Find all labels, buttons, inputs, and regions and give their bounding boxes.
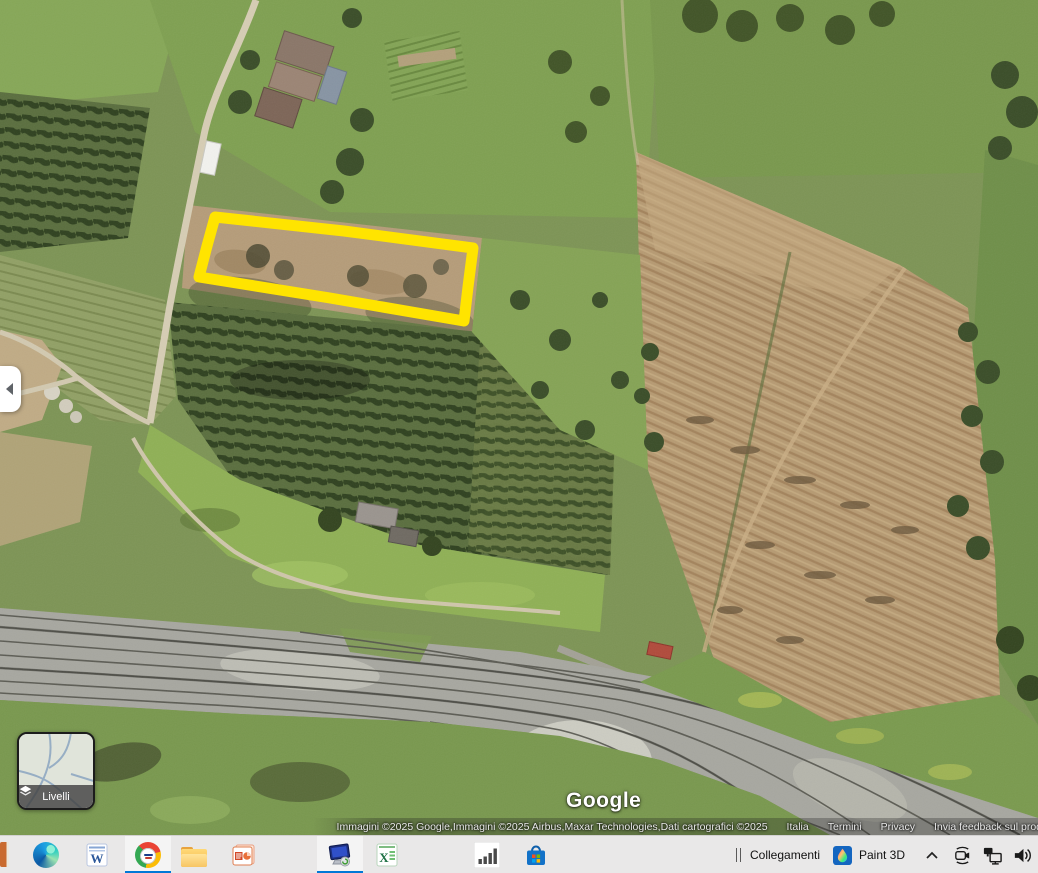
side-panel-collapse-button[interactable] bbox=[0, 366, 21, 412]
links-toolbar-label: Collegamenti bbox=[750, 848, 820, 862]
chrome-icon bbox=[135, 842, 161, 868]
system-tray bbox=[921, 836, 1038, 873]
taskbar-remote-desktop-button[interactable] bbox=[317, 836, 363, 873]
feedback-link[interactable]: Invia feedback sul prod bbox=[934, 821, 1038, 833]
taskbar-paint3d-button[interactable]: Paint 3D bbox=[826, 838, 912, 872]
google-logo[interactable]: Google bbox=[566, 789, 641, 813]
bar-chart-icon bbox=[474, 842, 500, 868]
map-attribution-bar: Immagini ©2025 Google,Immagini ©2025 Air… bbox=[0, 818, 1038, 835]
taskbar-powerpoint-button[interactable] bbox=[220, 836, 266, 873]
edge-icon bbox=[33, 842, 59, 868]
meet-now-camera-icon[interactable] bbox=[951, 844, 973, 866]
paint3d-icon bbox=[833, 846, 852, 865]
google-maps-satellite-view[interactable]: Livelli Google Immagini ©2025 Google,Imm… bbox=[0, 0, 1038, 835]
taskbar-word-button[interactable]: W bbox=[74, 836, 120, 873]
privacy-link[interactable]: Privacy bbox=[881, 821, 915, 833]
taskbar-stats-app-button[interactable] bbox=[464, 836, 510, 873]
file-explorer-icon bbox=[181, 847, 207, 867]
partial-app-icon bbox=[0, 842, 9, 867]
taskbar-partial-app-button[interactable] bbox=[0, 842, 9, 867]
hidden-icons-chevron[interactable] bbox=[921, 844, 943, 866]
remote-desktop-icon bbox=[327, 842, 353, 868]
paint3d-label: Paint 3D bbox=[859, 848, 905, 862]
links-toolbar: Collegamenti bbox=[736, 836, 820, 873]
excel-icon: X bbox=[374, 842, 400, 868]
desktop-screen: Livelli Google Immagini ©2025 Google,Imm… bbox=[0, 0, 1038, 873]
chevron-left-icon bbox=[6, 383, 13, 395]
terms-link[interactable]: Termini bbox=[828, 821, 862, 833]
satellite-imagery[interactable] bbox=[0, 0, 1038, 835]
microsoft-store-icon bbox=[523, 842, 549, 868]
region-label: Italia bbox=[787, 821, 809, 833]
powerpoint-icon bbox=[230, 842, 256, 868]
svg-text:X: X bbox=[379, 850, 389, 865]
volume-icon[interactable] bbox=[1011, 844, 1033, 866]
chrome-profile-badge bbox=[140, 848, 156, 864]
toolbar-grip-handle[interactable] bbox=[736, 848, 741, 862]
taskbar-file-explorer-button[interactable] bbox=[171, 836, 217, 873]
layers-button[interactable]: Livelli bbox=[17, 732, 95, 810]
imagery-copyright: Immagini ©2025 Google,Immagini ©2025 Air… bbox=[337, 821, 768, 833]
taskbar-excel-button[interactable]: X bbox=[364, 836, 410, 873]
windows-taskbar: W bbox=[0, 835, 1038, 873]
layers-diamond-icon bbox=[19, 785, 32, 798]
taskbar-store-button[interactable] bbox=[513, 836, 559, 873]
taskbar-edge-button[interactable] bbox=[23, 836, 69, 873]
svg-text:W: W bbox=[91, 851, 104, 866]
taskbar-chrome-button[interactable] bbox=[125, 836, 171, 873]
layers-button-label: Livelli bbox=[42, 791, 70, 803]
word-icon: W bbox=[84, 842, 110, 868]
network-icon[interactable] bbox=[981, 844, 1003, 866]
